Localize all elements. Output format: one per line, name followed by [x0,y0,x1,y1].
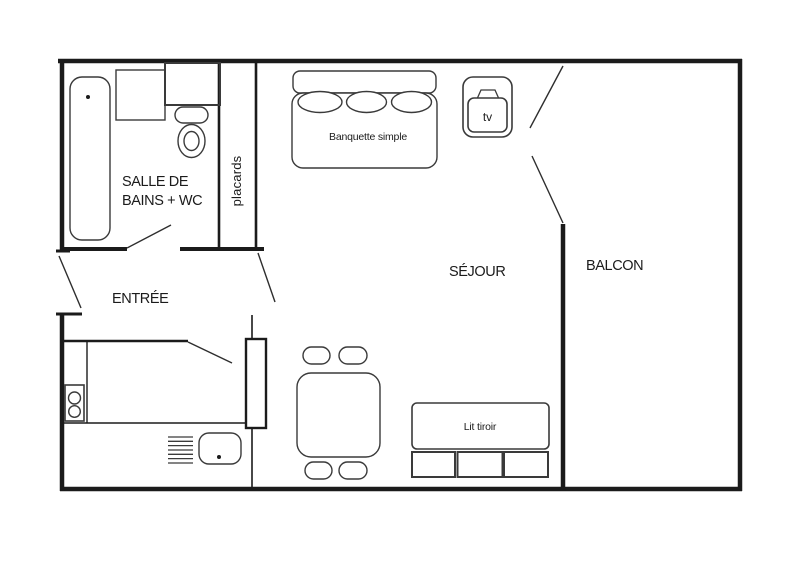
stove [65,385,84,421]
chair-bottom-left [305,462,332,479]
bathroom-fixtures [70,63,220,240]
balcony-door-pane-upper [530,66,563,128]
chair-top-right [339,347,367,364]
banquette-label: Banquette simple [329,131,407,143]
dining-table [297,373,380,457]
entrance-label: ENTRÉE [112,290,169,307]
closets-label: placards [229,155,244,206]
bathroom-label-line1: SALLE DE [122,174,189,190]
stove-burner-bottom [69,406,81,418]
living-door-swing [258,253,275,302]
banquette-cushion-right [392,92,432,113]
kitchenette [65,385,241,464]
balcony-door-pane-lower [532,156,563,223]
drawer-bed-label: Lit tiroir [464,421,497,433]
bathroom-label-line2: BAINS + WC [122,193,202,209]
vanity-unit [116,70,165,120]
toilet-cistern [175,107,208,123]
balcony-label: BALCON [586,258,643,274]
washbasin-unit [165,63,220,105]
bathtub [70,77,110,240]
drainer [168,437,193,463]
floor-plan-drawing: Banquette simple tv Lit tiroir [0,0,800,566]
bathroom-door-swing [127,225,171,248]
dining-set [297,347,380,479]
tv-label: tv [483,110,492,124]
wall-end-caps [56,251,82,314]
banquette-cushion-left [298,92,342,113]
banquette-backrest [293,71,436,93]
tv-unit [463,77,512,137]
chair-top-left [303,347,330,364]
banquette [292,71,437,168]
kitchen-sink [199,433,241,464]
drawer-bed-drawer-3 [504,452,548,477]
chair-bottom-right [339,462,367,479]
toilet-bowl-outer [178,125,205,158]
living-room-label: SÉJOUR [449,263,505,280]
toilet-bowl-inner [184,132,199,151]
stove-burner-top [69,392,81,404]
drawer-bed-drawer-1 [412,452,455,477]
sink-drain [217,455,221,459]
banquette-cushion-middle [347,92,387,113]
cabin-door-panel [246,339,266,428]
drawer-bed [412,403,549,477]
cabin-door-swing [188,342,232,363]
floor-plan: Banquette simple tv Lit tiroir [0,0,800,566]
drawer-bed-drawer-2 [458,452,503,477]
entrance-door-swing [59,256,81,308]
bathtub-drain [86,95,90,99]
